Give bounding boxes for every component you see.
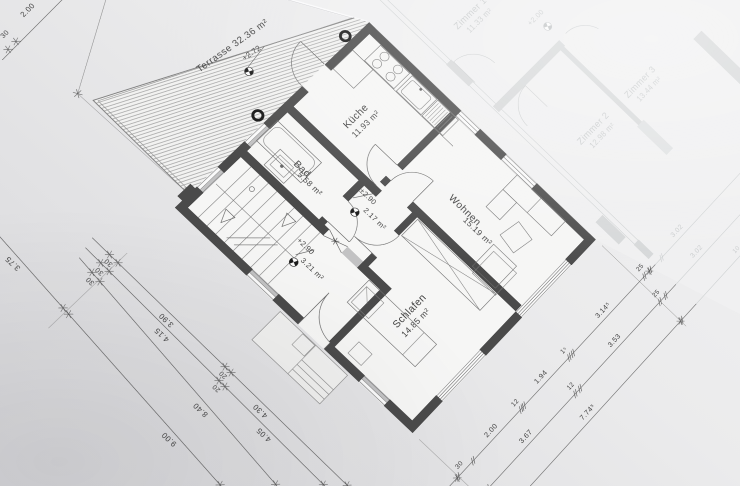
svg-text:2.00: 2.00	[18, 1, 37, 18]
svg-text:1⁵: 1⁵	[560, 346, 569, 356]
svg-text:8.40: 8.40	[191, 401, 210, 419]
svg-text:30: 30	[0, 29, 11, 40]
svg-text:7.74⁵: 7.74⁵	[578, 402, 597, 422]
svg-text:30: 30	[85, 275, 97, 286]
svg-text:4.05: 4.05	[254, 426, 273, 444]
svg-text:1.94: 1.94	[532, 368, 549, 386]
svg-text:30: 30	[454, 460, 465, 471]
svg-text:12: 12	[566, 381, 576, 391]
svg-text:30: 30	[94, 266, 106, 277]
svg-text:20: 20	[218, 369, 229, 380]
svg-text:3.67: 3.67	[517, 427, 534, 445]
svg-text:3.53: 3.53	[606, 332, 623, 349]
svg-text:3.90: 3.90	[157, 311, 176, 329]
svg-text:20: 20	[211, 383, 222, 394]
svg-text:3.75: 3.75	[3, 255, 22, 273]
svg-text:4.30: 4.30	[251, 402, 270, 420]
svg-text:2.00: 2.00	[482, 421, 499, 439]
svg-text:30: 30	[103, 257, 115, 268]
svg-text:12: 12	[510, 398, 520, 408]
svg-text:9.00: 9.00	[159, 430, 178, 448]
svg-text:3.14⁵: 3.14⁵	[593, 300, 612, 320]
